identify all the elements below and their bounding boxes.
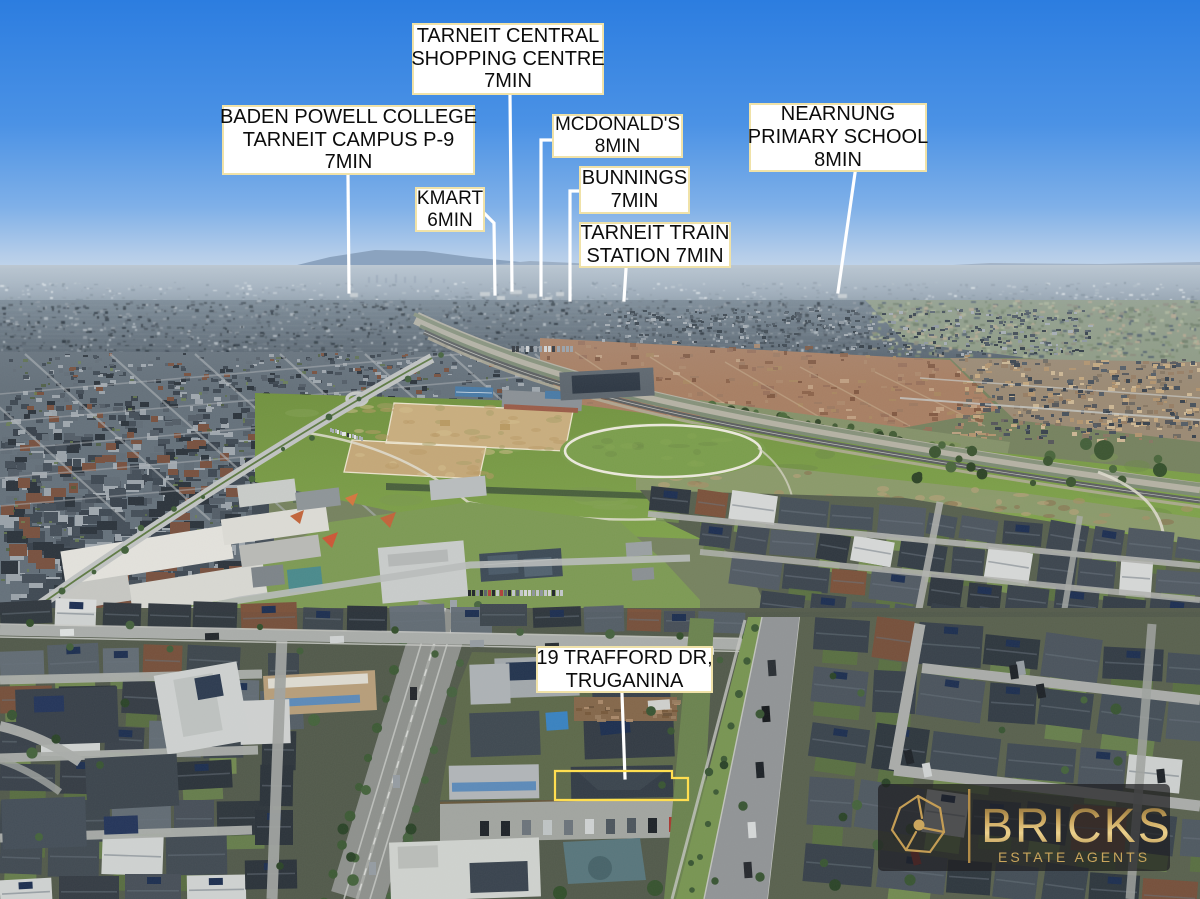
svg-text:BRICKS: BRICKS (981, 800, 1170, 853)
svg-text:ESTATE AGENTS: ESTATE AGENTS (998, 849, 1150, 865)
